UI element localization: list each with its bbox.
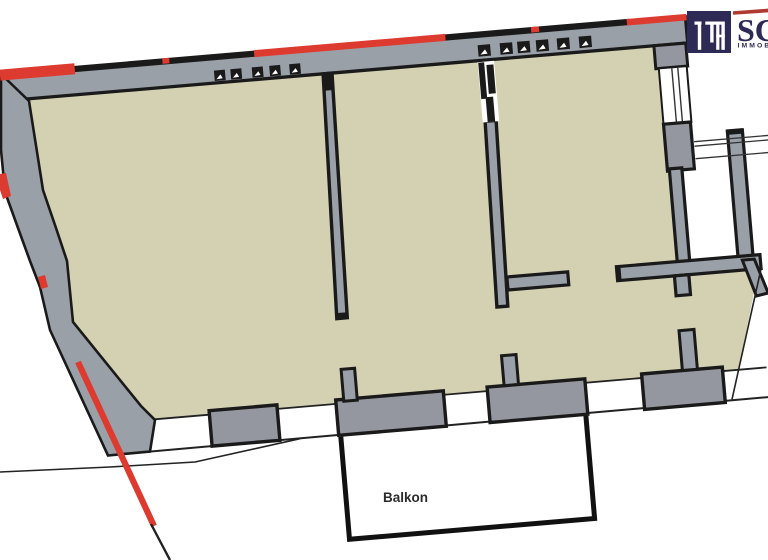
svg-text:Balkon: Balkon (383, 490, 428, 505)
svg-text:IMMOBILIEN: IMMOBILIEN (738, 43, 768, 50)
